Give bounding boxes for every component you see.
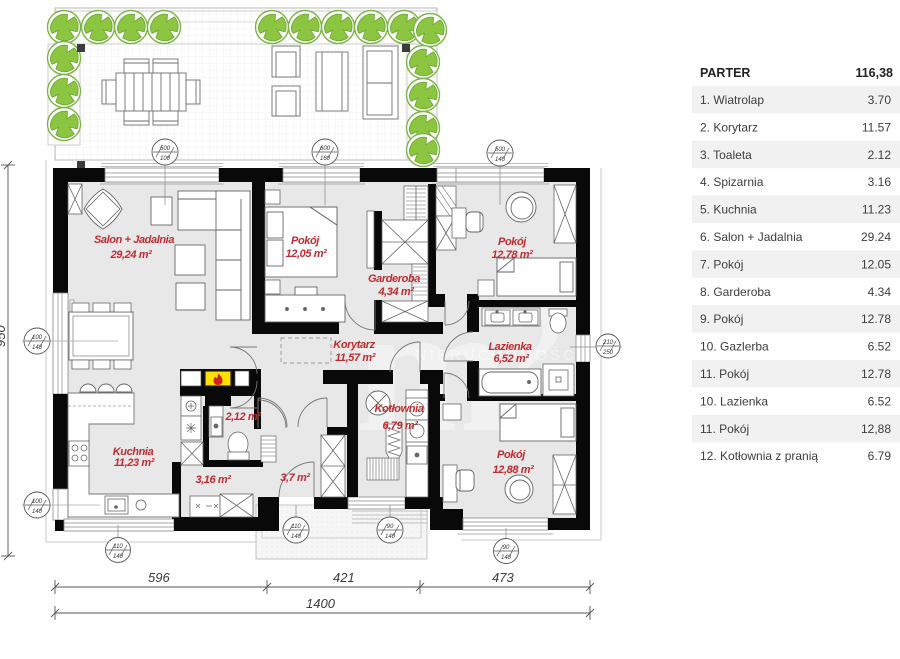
svg-text:140: 140 bbox=[501, 555, 512, 561]
svg-text:12.78: 12.78 bbox=[861, 367, 891, 381]
svg-text:6.52: 6.52 bbox=[868, 394, 892, 408]
svg-text:4. Spizarnia: 4. Spizarnia bbox=[700, 175, 764, 189]
svg-text:12.05: 12.05 bbox=[861, 257, 891, 271]
svg-text:11.57: 11.57 bbox=[862, 120, 891, 134]
svg-text:29,24 m²: 29,24 m² bbox=[110, 249, 153, 261]
svg-text:Salon + Jadalnia: Salon + Jadalnia bbox=[94, 234, 174, 246]
svg-text:3.16: 3.16 bbox=[868, 175, 892, 189]
svg-text:140: 140 bbox=[385, 534, 396, 540]
svg-text:PARTER: PARTER bbox=[700, 66, 750, 80]
svg-text:9. Pokój: 9. Pokój bbox=[700, 312, 743, 326]
svg-text:90: 90 bbox=[387, 524, 394, 530]
svg-text:1. Wiatrolap: 1. Wiatrolap bbox=[700, 93, 764, 107]
svg-text:6,79 m²: 6,79 m² bbox=[382, 420, 418, 432]
svg-text:6.52: 6.52 bbox=[868, 340, 892, 354]
svg-text:160: 160 bbox=[320, 156, 331, 162]
svg-text:11. Pokój: 11. Pokój bbox=[700, 422, 749, 436]
svg-text:250: 250 bbox=[602, 350, 614, 356]
svg-text:11,57 m²: 11,57 m² bbox=[335, 352, 376, 364]
svg-text:950: 950 bbox=[0, 325, 8, 347]
svg-text:421: 421 bbox=[333, 570, 355, 585]
svg-text:140: 140 bbox=[113, 554, 124, 560]
svg-text:7. Pokój: 7. Pokój bbox=[700, 257, 743, 271]
svg-text:Pokój: Pokój bbox=[291, 235, 320, 247]
svg-text:6. Salon + Jadalnia: 6. Salon + Jadalnia bbox=[700, 230, 803, 244]
svg-text:100: 100 bbox=[32, 335, 43, 341]
svg-text:12,78 m²: 12,78 m² bbox=[492, 249, 534, 261]
svg-text:90: 90 bbox=[503, 545, 510, 551]
svg-text:Pokój: Pokój bbox=[498, 236, 527, 248]
svg-text:6.79: 6.79 bbox=[868, 449, 892, 463]
svg-text:5. Kuchnia: 5. Kuchnia bbox=[700, 203, 757, 217]
svg-text:500: 500 bbox=[495, 147, 506, 153]
svg-text:Kotłownia: Kotłownia bbox=[375, 403, 424, 415]
svg-text:596: 596 bbox=[148, 570, 170, 585]
svg-text:6,52 m²: 6,52 m² bbox=[493, 353, 529, 365]
svg-text:473: 473 bbox=[492, 570, 514, 585]
svg-text:500: 500 bbox=[160, 146, 171, 152]
svg-text:11,23 m²: 11,23 m² bbox=[114, 457, 155, 469]
svg-text:Lazienka: Lazienka bbox=[488, 341, 532, 353]
svg-text:8. Garderoba: 8. Garderoba bbox=[700, 285, 771, 299]
svg-text:3,7 m²: 3,7 m² bbox=[280, 472, 310, 484]
svg-text:11. Pokój: 11. Pokój bbox=[700, 367, 749, 381]
svg-text:3,16 m²: 3,16 m² bbox=[195, 474, 231, 486]
svg-text:10. Lazienka: 10. Lazienka bbox=[700, 394, 768, 408]
svg-text:2. Korytarz: 2. Korytarz bbox=[700, 120, 758, 134]
svg-text:3.70: 3.70 bbox=[868, 93, 892, 107]
svg-text:4.34: 4.34 bbox=[868, 285, 892, 299]
svg-text:4,34 m²: 4,34 m² bbox=[377, 286, 414, 298]
svg-text:12.78: 12.78 bbox=[861, 312, 891, 326]
svg-text:Garderoba: Garderoba bbox=[368, 273, 420, 285]
svg-text:12,88: 12,88 bbox=[861, 422, 891, 436]
svg-text:2,12 m²: 2,12 m² bbox=[224, 411, 261, 423]
svg-text:140: 140 bbox=[32, 509, 43, 515]
svg-text:10. Gazlerba: 10. Gazlerba bbox=[700, 340, 769, 354]
svg-text:12. Kotłownia z pranią: 12. Kotłownia z pranią bbox=[700, 449, 818, 463]
svg-text:3. Toaleta: 3. Toaleta bbox=[700, 148, 752, 162]
svg-text:11.23: 11.23 bbox=[862, 203, 891, 217]
svg-text:12,88 m²: 12,88 m² bbox=[493, 464, 535, 476]
svg-text:600: 600 bbox=[320, 146, 331, 152]
svg-text:110: 110 bbox=[113, 544, 123, 550]
svg-text:12,05 m²: 12,05 m² bbox=[286, 248, 328, 260]
svg-text:210: 210 bbox=[602, 340, 614, 346]
svg-text:1400: 1400 bbox=[306, 596, 336, 611]
svg-text:110: 110 bbox=[291, 524, 301, 530]
svg-text:29.24: 29.24 bbox=[861, 230, 891, 244]
svg-text:Korytarz: Korytarz bbox=[333, 339, 375, 351]
svg-text:140: 140 bbox=[291, 534, 302, 540]
svg-text:140: 140 bbox=[495, 157, 506, 163]
svg-text:116,38: 116,38 bbox=[855, 66, 893, 80]
svg-text:Pokój: Pokój bbox=[497, 449, 526, 461]
svg-text:140: 140 bbox=[32, 345, 43, 351]
svg-text:100: 100 bbox=[32, 499, 43, 505]
svg-text:100: 100 bbox=[160, 156, 171, 162]
svg-text:2.12: 2.12 bbox=[868, 148, 892, 162]
